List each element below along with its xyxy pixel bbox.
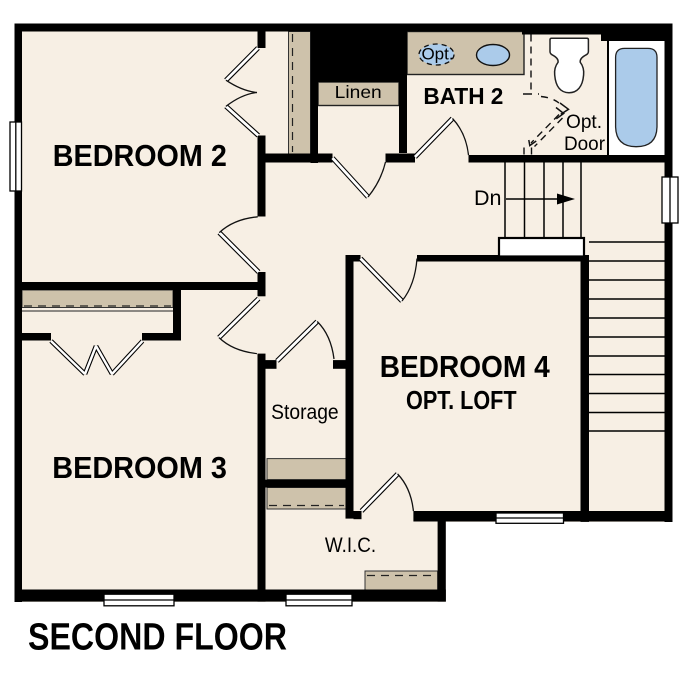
svg-text:Opt.: Opt.	[421, 44, 453, 63]
svg-text:BEDROOM 2: BEDROOM 2	[53, 139, 227, 173]
svg-text:Opt.: Opt.	[566, 112, 602, 133]
svg-text:Door: Door	[564, 134, 606, 155]
svg-text:SECOND FLOOR: SECOND FLOOR	[28, 617, 287, 659]
svg-text:BEDROOM 4: BEDROOM 4	[380, 350, 550, 384]
svg-text:BEDROOM 3: BEDROOM 3	[52, 451, 227, 485]
svg-text:Dn: Dn	[474, 186, 501, 210]
svg-text:BATH 2: BATH 2	[423, 83, 503, 109]
svg-text:W.I.C.: W.I.C.	[325, 534, 376, 557]
svg-text:OPT. LOFT: OPT. LOFT	[406, 387, 517, 415]
svg-text:Linen: Linen	[335, 82, 382, 102]
svg-text:Storage: Storage	[271, 401, 339, 424]
